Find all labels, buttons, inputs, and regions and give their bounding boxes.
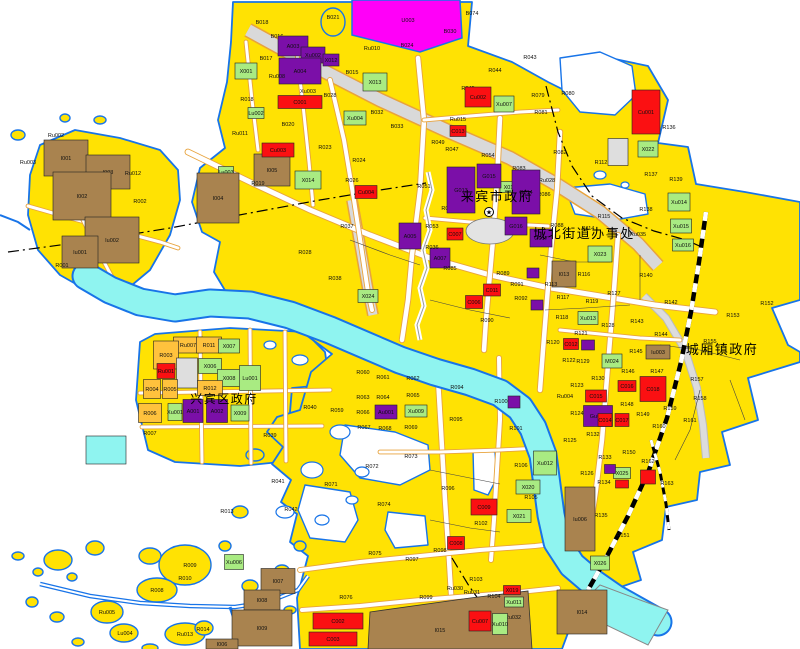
region-label-xingbin-district-government: 兴宾区政府 — [190, 391, 258, 406]
parcel-label-Xu007: Xu007 — [496, 102, 512, 108]
parcel-label-R158: R158 — [693, 396, 706, 402]
parcel-label-R116: R116 — [578, 272, 591, 278]
parcel-label-R053: R053 — [425, 224, 438, 230]
parcel-label-R068: R068 — [378, 426, 391, 432]
parcel-label-R009: R009 — [183, 563, 196, 569]
parcel-label-X020: X020 — [522, 485, 535, 491]
parcel-label-C017: C017 — [615, 418, 628, 424]
parcel-label-R142: R142 — [664, 300, 677, 306]
parcel-label-R152: R152 — [760, 301, 773, 307]
parcel-label-R144: R144 — [654, 332, 667, 338]
parcel-label-R119: R119 — [586, 299, 599, 305]
parcel-label-I014: I014 — [577, 610, 588, 616]
parcel-label-Ru011: Ru011 — [232, 131, 248, 137]
parcel-label-R061: R061 — [376, 375, 389, 381]
parcel-unlabeled[interactable] — [508, 396, 520, 408]
parcel-label-I005: I005 — [267, 168, 278, 174]
parcel-label-R080: R080 — [561, 91, 574, 97]
parcel-label-A004: A004 — [294, 69, 307, 75]
parcel-label-R125: R125 — [563, 438, 576, 444]
parcel-label-Ru007: Ru007 — [180, 343, 196, 349]
pond — [330, 425, 350, 439]
islet — [94, 116, 106, 124]
road[interactable] — [142, 426, 322, 427]
parcel-label-R044: R044 — [488, 68, 501, 74]
parcel-label-R041: R041 — [271, 479, 284, 485]
government-star-glyph: ★ — [486, 209, 492, 217]
parcel-label-R049: R049 — [431, 140, 444, 146]
parcel-label-Cu003: Cu003 — [270, 148, 286, 154]
parcel-label-Iu002: Iu002 — [105, 238, 119, 244]
parcel-label-C008: C008 — [449, 541, 462, 547]
parcel-label-R037: R037 — [340, 224, 353, 230]
parcel-label-C007: C007 — [448, 232, 461, 238]
parcel-label-G016: G016 — [509, 224, 522, 230]
parcel-label-R128: R128 — [601, 323, 614, 329]
parcel-label-R043: R043 — [523, 55, 536, 61]
parcel-unlabeled[interactable] — [177, 358, 198, 388]
parcel-label-Lu004: Lu004 — [117, 631, 132, 637]
parcel-unlabeled[interactable] — [616, 480, 629, 488]
parcel-label-R120: R120 — [546, 340, 559, 346]
parcel-label-R159: R159 — [663, 406, 676, 412]
parcel-label-R150: R150 — [622, 450, 635, 456]
parcel-label-Ru001: Ru001 — [158, 369, 174, 375]
parcel-label-Ru005: Ru005 — [99, 610, 115, 616]
parcel-label-R059: R059 — [330, 408, 343, 414]
islet — [219, 541, 231, 551]
parcel-label-R085: R085 — [443, 266, 456, 272]
parcel-label-Ru003: Ru003 — [20, 160, 36, 166]
region-label-laibin-city-government: 来宾市政府 — [461, 189, 534, 204]
parcel-label-R106: R106 — [514, 463, 527, 469]
parcel-label-R039: R039 — [263, 433, 276, 439]
parcel-label-R014: R014 — [196, 627, 209, 633]
parcel-label-R074: R074 — [377, 502, 390, 508]
parcel-label-R112: R112 — [595, 160, 608, 166]
parcel-label-X014: X014 — [302, 178, 315, 184]
parcel-label-Ru004: Ru004 — [557, 394, 573, 400]
parcel-label-R136: R136 — [662, 125, 675, 131]
pond — [301, 462, 323, 478]
parcel-label-R101: R101 — [509, 426, 522, 432]
parcel-label-Xu014: Xu014 — [671, 200, 687, 206]
parcel-label-R147: R147 — [650, 369, 663, 375]
parcel-label-R163: R163 — [660, 481, 673, 487]
parcel-label-B033: B033 — [391, 124, 404, 130]
parcel-label-C014: C014 — [598, 418, 611, 424]
parcel-label-Xu012: Xu012 — [537, 461, 553, 467]
parcel-label-M024: M024 — [605, 359, 619, 365]
parcel-label-I013: I013 — [559, 272, 570, 278]
parcel-label-R040: R040 — [303, 405, 316, 411]
parcel-label-Xu015: Xu015 — [673, 224, 689, 230]
parcel-label-B015: B015 — [346, 70, 359, 76]
parcel-label-Lu001: Lu001 — [242, 376, 257, 382]
parcel-label-R149: R149 — [636, 412, 649, 418]
pond — [621, 182, 629, 188]
parcel-unlabeled[interactable] — [527, 268, 539, 278]
islet — [50, 612, 64, 622]
parcel-label-R072: R072 — [365, 464, 378, 470]
parcel-label-Xu004: Xu004 — [347, 116, 363, 122]
parcel-label-C003: C003 — [326, 637, 339, 643]
parcel-label-Ru008: Ru008 — [269, 74, 285, 80]
parcel-label-X012: X012 — [325, 58, 338, 64]
parcel-label-B020: B020 — [282, 122, 295, 128]
parcel-label-R067: R067 — [357, 425, 370, 431]
parcel-label-R124: R124 — [570, 411, 583, 417]
parcel-label-R129: R129 — [576, 359, 589, 365]
parcel-label-R062: R062 — [406, 376, 419, 382]
parcel-label-Au001: Au001 — [378, 410, 394, 416]
parcel-label-A003: A003 — [287, 44, 300, 50]
islet — [86, 541, 104, 555]
parcel-label-R138: R138 — [639, 207, 652, 213]
parcel-label-R023: R023 — [318, 145, 331, 151]
parcel-label-R121: R121 — [574, 331, 587, 337]
parcel-label-B028: B028 — [324, 93, 337, 99]
parcel-label-C006: C006 — [467, 300, 480, 306]
islet — [60, 114, 70, 122]
parcel-label-R005: R005 — [163, 387, 176, 393]
parcel-label-C001: C001 — [293, 100, 306, 106]
parcel-label-Ru002: Ru002 — [48, 133, 64, 139]
parcel-label-Iu006: Iu006 — [573, 517, 587, 523]
parcel-label-Iu003: Iu003 — [651, 350, 665, 356]
parcel-label-Xu009: Xu009 — [408, 409, 424, 415]
parcel-label-R042: R042 — [284, 507, 297, 513]
parcel-label-X009: X009 — [234, 411, 247, 417]
parcel-label-Xu013: Xu013 — [580, 316, 596, 322]
parcel-label-R051: R051 — [417, 184, 430, 190]
parcel-label-R140: R140 — [639, 273, 652, 279]
parcel-label-C018: C018 — [646, 387, 659, 393]
map-canvas[interactable]: I001I003I002Iu002Iu001Ru002Ru003Ru012R00… — [0, 0, 800, 649]
islet — [12, 552, 24, 560]
parcel-label-C002: C002 — [331, 619, 344, 625]
parcel-label-C009: C009 — [477, 505, 490, 511]
road[interactable] — [285, 332, 286, 461]
islet — [11, 130, 25, 140]
parcel-label-Ru010: Ru010 — [364, 46, 380, 52]
parcel-label-R113: R113 — [545, 282, 558, 288]
parcel-label-Ru030: Ru030 — [447, 586, 463, 592]
parcel-label-I004: I004 — [213, 196, 224, 202]
parcel-label-R162: R162 — [641, 459, 654, 465]
parcel-label-R003: R003 — [159, 353, 172, 359]
pond — [346, 496, 358, 504]
parcel-label-R133: R133 — [598, 455, 611, 461]
parcel-label-R090: R090 — [480, 318, 493, 324]
parcel-label-R081: R081 — [534, 110, 547, 116]
parcel-label-X013: X013 — [369, 80, 382, 86]
parcel-label-R065: R065 — [406, 393, 419, 399]
parcel-label-X001: X001 — [240, 69, 253, 75]
parcel-label-R089: R089 — [496, 271, 509, 277]
parcel-label-X024: X024 — [362, 294, 375, 300]
parcel-label-Ru031: Ru031 — [464, 590, 480, 596]
parcel-label-R001: R001 — [55, 263, 68, 269]
parcel-label-Cu004: Cu004 — [358, 190, 374, 196]
parcel-label-Xu006: Xu006 — [226, 560, 242, 566]
pond — [594, 171, 606, 179]
parcel-label-G015: G015 — [482, 174, 495, 180]
parcel-label-R004: R004 — [145, 387, 158, 393]
parcel-label-R117: R117 — [557, 295, 570, 301]
parcel-label-X008: X008 — [223, 376, 236, 382]
parcel-label-R073: R073 — [404, 454, 417, 460]
parcel-label-I002: I002 — [77, 194, 88, 200]
pond — [315, 515, 329, 525]
parcel-label-R098: R098 — [433, 548, 446, 554]
parcel-label-B018: B018 — [256, 20, 269, 26]
parcel-label-R071: R071 — [324, 482, 337, 488]
parcel-label-X022: X022 — [642, 147, 655, 153]
parcel-label-R122: R122 — [562, 358, 575, 364]
parcel-label-R054: R054 — [481, 153, 494, 159]
parcel-label-R103: R103 — [469, 577, 482, 583]
parcel-label-B032: B032 — [371, 110, 384, 116]
parcel-label-R115: R115 — [598, 214, 611, 220]
parcel-label-R079: R079 — [531, 93, 544, 99]
islet — [321, 8, 345, 36]
parcel-label-R139: R139 — [669, 177, 682, 183]
parcel-label-R146: R146 — [621, 369, 634, 375]
parcel-label-R038: R038 — [328, 276, 341, 282]
parcel-label-R019: R019 — [251, 181, 264, 187]
parcel-label-R161: R161 — [683, 418, 696, 424]
parcel-label-X025: X025 — [616, 471, 629, 477]
parcel-unlabeled[interactable] — [641, 470, 656, 484]
parcel-label-R075: R075 — [368, 551, 381, 557]
parcel-label-I015: I015 — [435, 628, 446, 634]
parcel-label-Xu011: Xu011 — [506, 600, 522, 606]
parcel-label-Xu010: Xu010 — [492, 622, 508, 628]
parcel-label-Cu001: Cu001 — [638, 110, 654, 116]
parcel-label-R137: R137 — [644, 172, 657, 178]
parcel-label-R002: R002 — [133, 199, 146, 205]
parcel-label-R028: R028 — [298, 250, 311, 256]
parcel-label-R096: R096 — [441, 486, 454, 492]
parcel-label-R069: R069 — [404, 425, 417, 431]
parcel-label-R092: R092 — [514, 296, 527, 302]
parcel-label-R099: R099 — [419, 595, 432, 601]
parcel-label-R008: R008 — [150, 588, 163, 594]
parcel-label-B024: B024 — [401, 43, 414, 49]
parcel-label-B017: B017 — [260, 56, 273, 62]
parcel-label-A007: A007 — [434, 256, 447, 262]
parcel-label-Iu001: Iu001 — [73, 250, 87, 256]
parcel-label-R157: R157 — [690, 377, 703, 383]
parcel-unlabeled[interactable] — [608, 139, 628, 166]
parcel-label-B074: B074 — [466, 11, 479, 17]
parcel-label-X019: X019 — [506, 588, 519, 594]
parcel-label-R097: R097 — [405, 557, 418, 563]
parcel-label-R094: R094 — [450, 385, 463, 391]
parcel-label-R091: R091 — [510, 282, 523, 288]
parcel-label-A002: A002 — [211, 409, 224, 415]
parcel-label-R123: R123 — [570, 383, 583, 389]
parcel-label-Cu007: Cu007 — [472, 619, 488, 625]
islet — [294, 541, 306, 551]
parcel-label-R082: R082 — [553, 150, 566, 156]
parcel-label-I009: I009 — [257, 626, 268, 632]
parcel-label-U003: U003 — [401, 18, 414, 24]
parcel-label-R018: R018 — [240, 97, 253, 103]
parcel-label-R063: R063 — [356, 395, 369, 401]
map-viewport[interactable]: I001I003I002Iu002Iu001Ru002Ru003Ru012R00… — [0, 0, 800, 649]
parcel-label-R118: R118 — [556, 315, 569, 321]
parcel-label-I001: I001 — [61, 156, 72, 162]
parcel-unlabeled[interactable] — [605, 465, 616, 474]
islet — [142, 644, 158, 649]
parcel-label-R026: R026 — [345, 178, 358, 184]
islet — [139, 548, 161, 564]
parcel-label-R024: R024 — [352, 158, 365, 164]
parcel-label-Ru012: Ru012 — [125, 171, 141, 177]
parcel-label-R126: R126 — [580, 471, 593, 477]
parcel-label-R153: R153 — [726, 313, 739, 319]
parcel-label-I007: I007 — [273, 579, 284, 585]
parcel-label-R076: R076 — [339, 595, 352, 601]
parcel-label-R064: R064 — [376, 395, 389, 401]
parcel-label-R010: R010 — [178, 576, 191, 582]
parcel-label-R104: R104 — [487, 594, 500, 600]
parcel-label-C013: C013 — [451, 129, 464, 135]
parcel-label-R006: R006 — [143, 411, 156, 417]
parcel-label-C015: C015 — [589, 394, 602, 400]
parcel-label-C012: C012 — [564, 342, 577, 348]
parcel-label-R143: R143 — [630, 319, 643, 325]
parcel-label-A005: A005 — [404, 234, 417, 240]
parcel-label-A001: A001 — [187, 409, 200, 415]
parcel-label-Cu002: Cu002 — [470, 95, 486, 101]
parcel-label-R105: R105 — [524, 495, 537, 501]
parcel-label-R036: R036 — [425, 245, 438, 251]
parcel-label-Xu003: Xu003 — [300, 89, 316, 95]
pond — [292, 355, 308, 365]
islet — [26, 597, 38, 607]
parcel-label-R066: R066 — [356, 410, 369, 416]
parcel-unlabeled[interactable] — [531, 300, 543, 310]
parcel-unlabeled[interactable] — [582, 340, 595, 350]
parcel-label-B030: B030 — [444, 29, 457, 35]
parcel-label-R100: R100 — [494, 399, 507, 405]
parcel-label-R011: R011 — [203, 343, 216, 349]
parcel-label-R047: R047 — [445, 147, 458, 153]
parcel-label-C016: C016 — [620, 384, 633, 390]
parcel-label-I008: I008 — [257, 598, 268, 604]
parcel-label-X007: X007 — [223, 344, 236, 350]
parcel-unlabeled[interactable] — [86, 436, 126, 464]
parcel-label-Lu002: Lu002 — [248, 111, 263, 117]
parcel-label-R160: R160 — [652, 424, 665, 430]
islet — [232, 506, 248, 518]
parcel-label-R135: R135 — [594, 513, 607, 519]
islet — [67, 573, 77, 581]
pond — [264, 341, 276, 349]
parcel-label-R060: R060 — [356, 370, 369, 376]
parcel-label-R148: R148 — [620, 402, 633, 408]
parcel-label-R134: R134 — [597, 480, 610, 486]
parcel-label-R145: R145 — [629, 349, 642, 355]
parcel-label-X026: X026 — [594, 561, 607, 567]
parcel-label-X021: X021 — [513, 514, 526, 520]
parcel-label-Ru013: Ru013 — [177, 632, 193, 638]
parcel-label-R013: R013 — [220, 509, 233, 515]
parcel-label-X023: X023 — [594, 252, 607, 258]
parcel-label-R102: R102 — [474, 521, 487, 527]
parcel-label-R151: R151 — [616, 533, 629, 539]
islet — [72, 638, 84, 646]
parcel-label-R132: R132 — [586, 432, 599, 438]
parcel-label-C011: C011 — [486, 288, 499, 294]
parcel-label-Xu016: Xu016 — [675, 243, 691, 249]
parcel-label-R130: R130 — [591, 376, 604, 382]
parcel-label-B021: B021 — [327, 15, 340, 21]
lake-floodplain-3 — [385, 512, 428, 548]
region-label-chengxiang-town-government: 城厢镇政府 — [686, 342, 759, 357]
parcel-label-X006: X006 — [204, 364, 217, 370]
parcel-label-I006: I006 — [217, 642, 228, 648]
parcel-label-R127: R127 — [607, 291, 620, 297]
parcel-label-R007: R007 — [143, 431, 156, 437]
parcel-label-R095: R095 — [449, 417, 462, 423]
parcel-label-Ru028: Ru028 — [539, 178, 555, 184]
islet — [44, 550, 72, 570]
parcel-label-Ru015: Ru015 — [450, 117, 466, 123]
islet — [33, 568, 43, 576]
region-label-chengbei-subdistrict-office: 城北街道办事处 — [533, 226, 635, 241]
parcel-label-Xu001: Xu001 — [167, 410, 183, 416]
